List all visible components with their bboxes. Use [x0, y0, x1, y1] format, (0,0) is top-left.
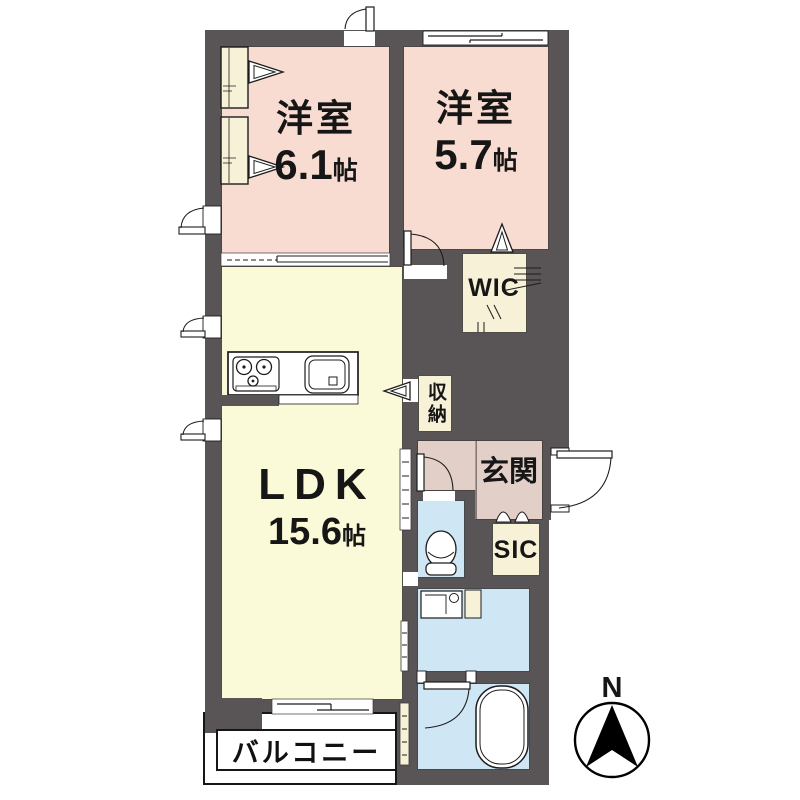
door-swing-icon	[404, 231, 447, 279]
wic-label: WIC	[460, 274, 528, 303]
storage-label: 収納	[417, 377, 453, 430]
room-size: 6.1帖	[240, 141, 392, 189]
sliding-window-icon	[423, 31, 548, 45]
compass-north-arrow-icon	[575, 703, 649, 777]
kitchen-sink-icon	[305, 356, 349, 393]
washing-machine-pan-icon	[421, 591, 462, 618]
compass-north-label: N	[594, 672, 630, 705]
folding-door-icon	[491, 224, 513, 252]
folding-door-icon	[496, 512, 529, 522]
room-name: 洋室	[240, 98, 392, 141]
floor-plan-canvas: 洋室 6.1帖 洋室 5.7帖 LDK 15.6帖 WIC 収納 玄関 SIC …	[0, 0, 800, 800]
entrance-label: 玄関	[474, 456, 544, 489]
door-swing-icon	[417, 671, 476, 728]
wall-step	[205, 698, 262, 733]
sliding-door-icon	[221, 253, 390, 266]
vanity-icon	[465, 590, 481, 618]
toilet-icon	[426, 531, 456, 575]
bedroom-2-label: 洋室 5.7帖	[401, 88, 551, 179]
sliding-door-icon	[272, 699, 373, 714]
entrance-door-swing-icon	[551, 448, 612, 512]
room-size: 15.6帖	[227, 511, 407, 555]
door-swing-icon	[344, 7, 375, 46]
room-name: 洋室	[401, 88, 551, 131]
ldk-label: LDK 15.6帖	[227, 460, 407, 554]
folding-door-icon	[384, 379, 418, 402]
bathtub-icon	[476, 686, 528, 768]
washroom-opening	[403, 572, 418, 586]
room-size: 5.7帖	[401, 131, 551, 179]
room-name: LDK	[227, 460, 407, 511]
sic-label: SIC	[490, 536, 542, 565]
door-swing-icon	[417, 454, 455, 501]
casement-window-icon	[179, 206, 221, 441]
fixtures-overlay	[0, 0, 800, 800]
stove-icon	[233, 357, 279, 391]
balcony-label: バルコニー	[216, 729, 397, 771]
bedroom-1-label: 洋室 6.1帖	[240, 98, 392, 189]
